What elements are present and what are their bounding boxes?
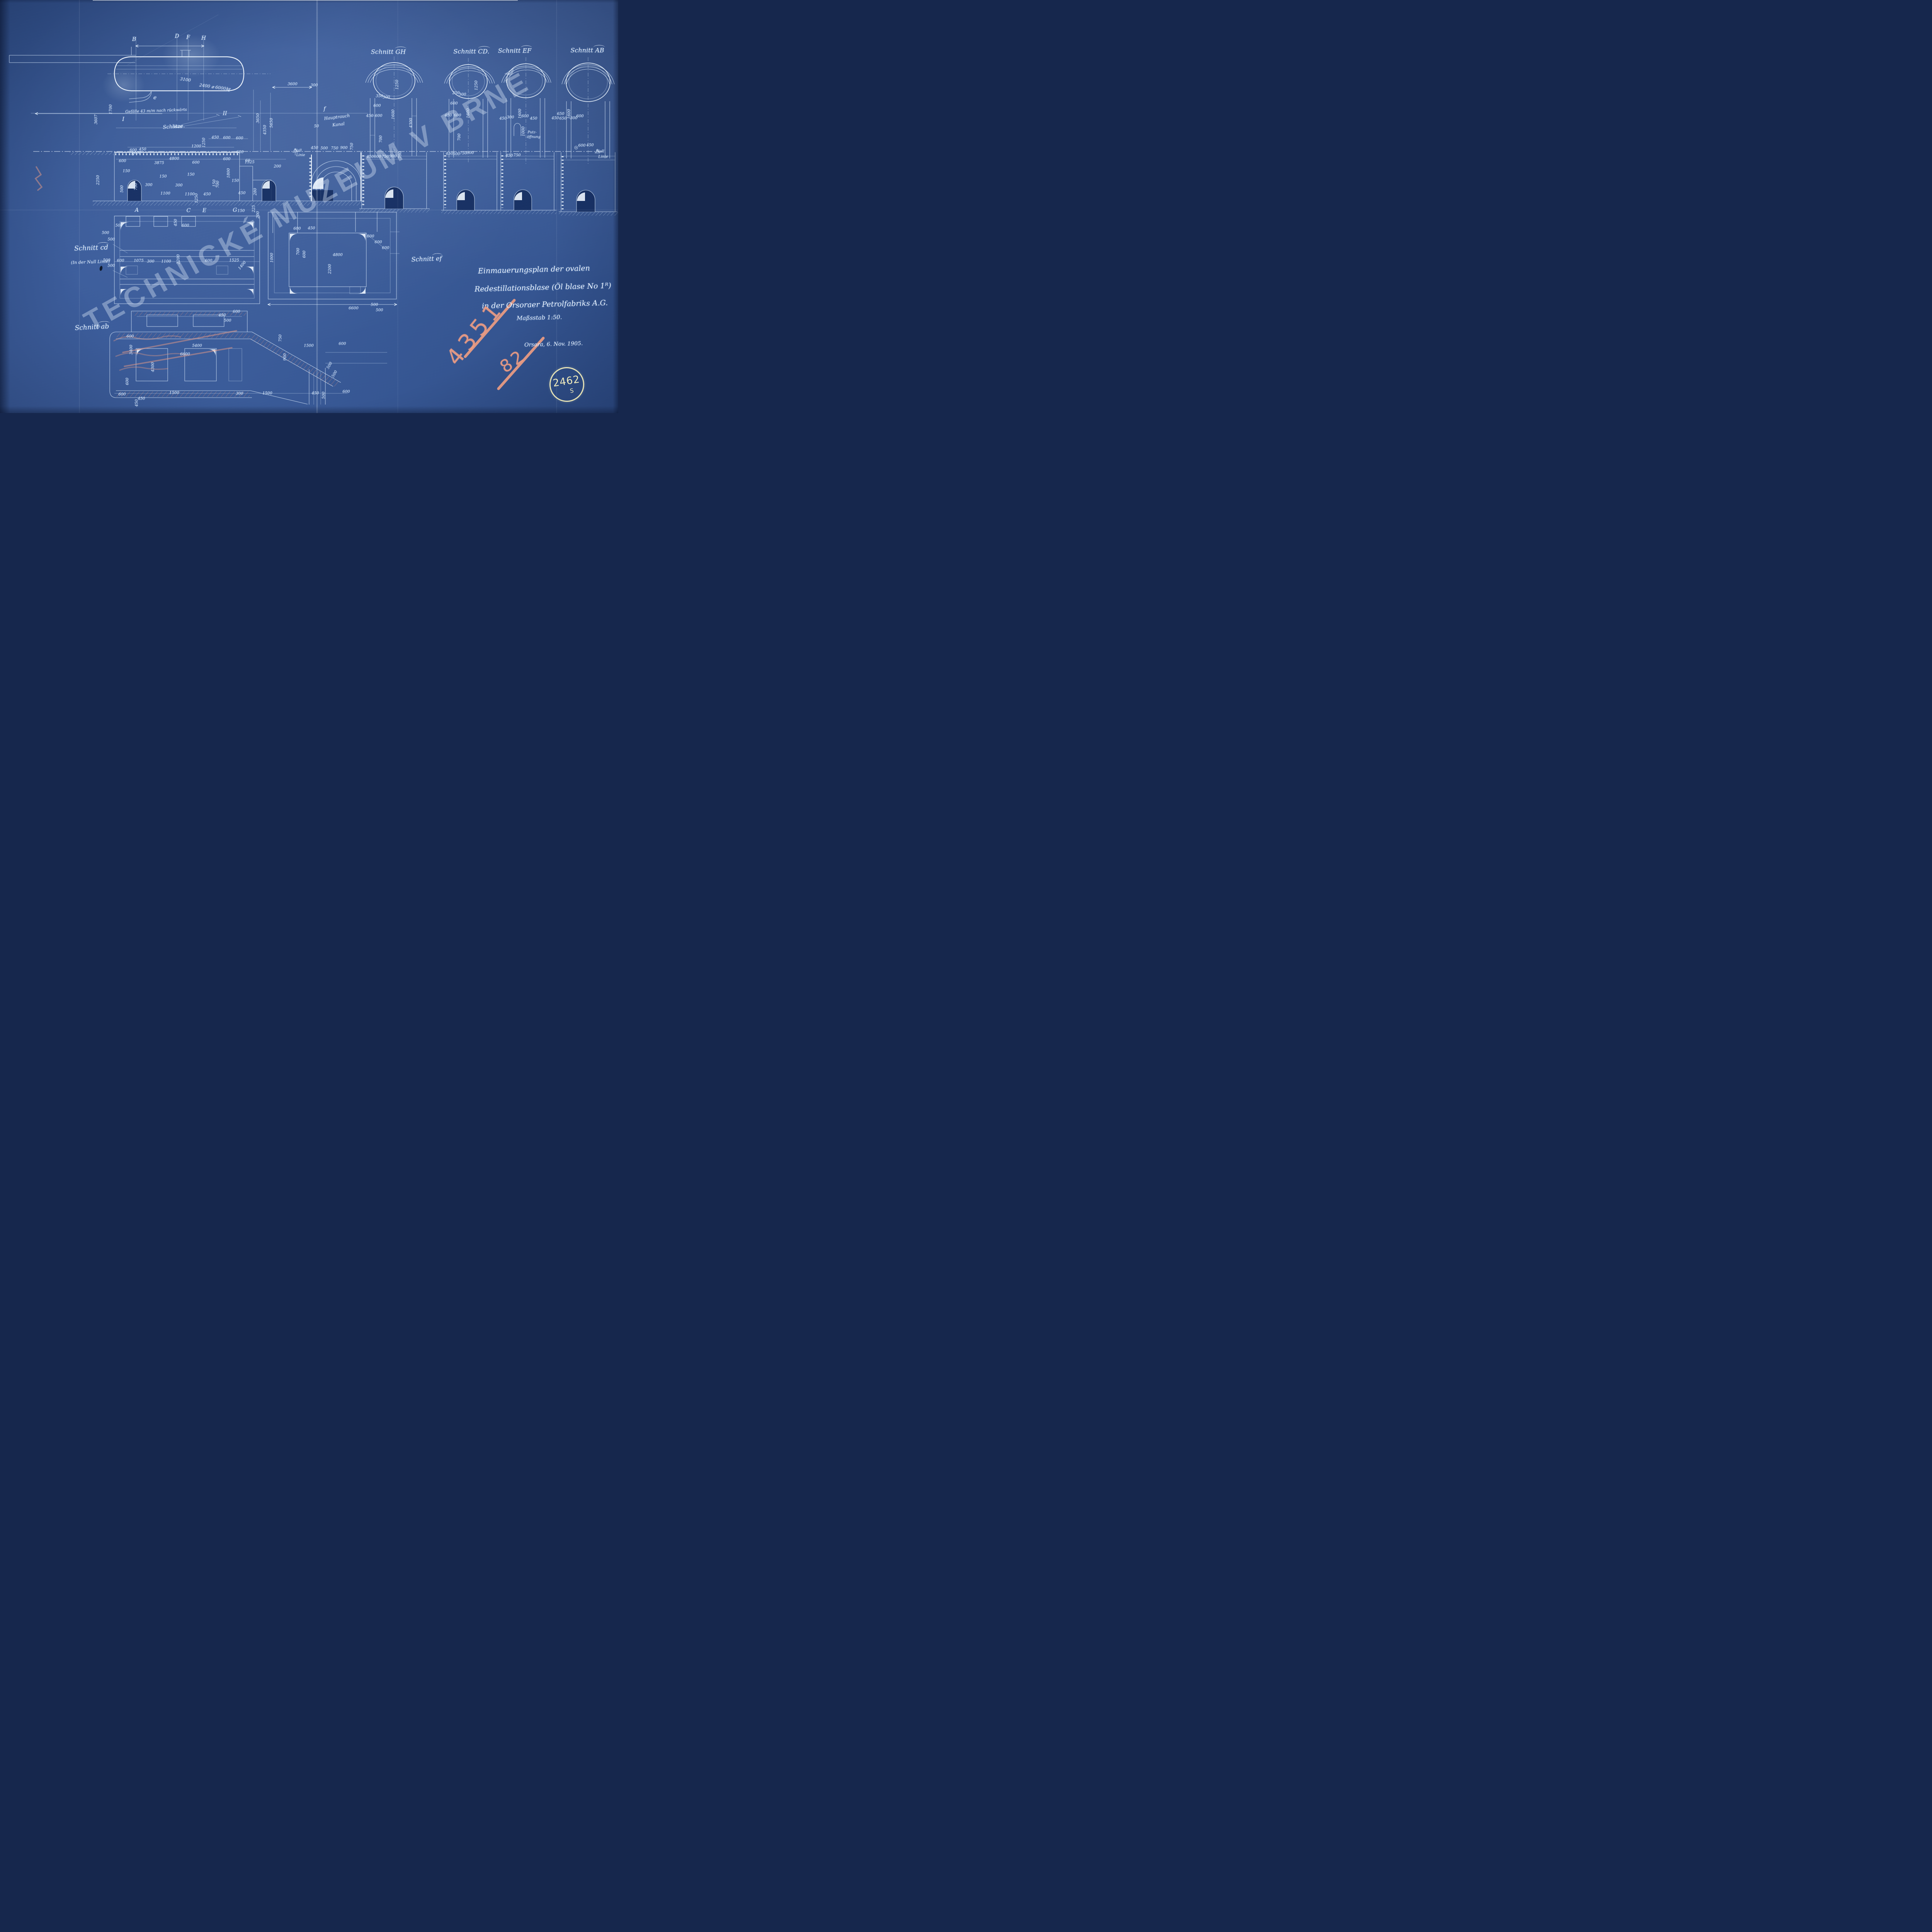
dimension-label: 2200 bbox=[177, 254, 181, 264]
dimension-label: 4800 bbox=[333, 253, 342, 257]
section-gh-drawing bbox=[359, 56, 430, 213]
dimension-label: 900 bbox=[340, 146, 347, 150]
dimension-label: 500 bbox=[120, 185, 124, 192]
dimension-label: 600 bbox=[182, 224, 189, 228]
dimension-label: 450 bbox=[139, 148, 146, 152]
dimension-label: 1075 bbox=[134, 259, 143, 263]
dimension-label: 600 bbox=[223, 157, 230, 162]
dimension-label: 6600 bbox=[180, 352, 190, 357]
dimension-label: 300 bbox=[507, 116, 514, 120]
plan-ef-drawing bbox=[268, 212, 400, 304]
dimension-label: 1100 bbox=[185, 192, 194, 197]
dimension-label: 500 bbox=[224, 319, 231, 323]
dimension-label: 750 bbox=[381, 155, 389, 159]
dimension-label: 300 bbox=[175, 184, 182, 188]
dimension-label: 1000 bbox=[270, 253, 274, 262]
dimension-label: 600 bbox=[374, 155, 381, 159]
fold-crease-horizontal bbox=[0, 209, 618, 211]
dimension-label: 200 bbox=[274, 165, 281, 169]
dimension-label: 1250 bbox=[202, 138, 206, 147]
dimension-label: 150 bbox=[159, 175, 167, 179]
dimension-label: 3650 bbox=[256, 113, 260, 123]
dimension-label: 700 bbox=[379, 135, 383, 143]
dimension-label: 900 bbox=[283, 353, 287, 361]
dimension-label: 500 bbox=[376, 308, 383, 313]
dimension-label: 600 bbox=[367, 235, 374, 239]
dimension-label: 600 bbox=[578, 144, 585, 148]
dimension-label: 600 bbox=[382, 246, 389, 250]
dimension-label: 1800 bbox=[227, 168, 231, 178]
scan-edge-highlight bbox=[93, 0, 518, 1]
dimension-label: 600 bbox=[126, 335, 134, 339]
section-label: Schnitt GH bbox=[371, 48, 406, 56]
dimension-label: 1100 bbox=[160, 192, 170, 196]
dimension-label: 450 bbox=[366, 155, 374, 159]
dimension-label: 1200 bbox=[191, 145, 201, 149]
dimension-label: 500 bbox=[107, 264, 115, 268]
sheet-edge-right bbox=[613, 0, 618, 413]
cut-letter: B bbox=[132, 36, 136, 43]
cut-letter: F bbox=[186, 34, 190, 41]
dimension-label: 2200 bbox=[328, 264, 332, 274]
dimension-label: 1525 bbox=[245, 160, 254, 165]
dimension-label: 600 bbox=[192, 161, 199, 165]
dimension-label: 750 bbox=[134, 183, 138, 190]
dimension-label: 1500 bbox=[304, 344, 313, 348]
dimension-label: 300 bbox=[145, 183, 152, 187]
dimension-label: 450 bbox=[308, 226, 315, 231]
dimension-label: 600 bbox=[126, 378, 130, 385]
dimension-label: 150 bbox=[187, 173, 194, 177]
section-label: Schnitt AB bbox=[571, 47, 604, 54]
dimension-label: 1100 bbox=[161, 260, 171, 264]
dimension-label: 600 bbox=[454, 114, 461, 118]
cut-letter: e bbox=[153, 95, 156, 101]
section-label: Putz- bbox=[527, 131, 536, 134]
dimension-label: 450 bbox=[238, 191, 245, 196]
section-cd-drawing bbox=[441, 58, 499, 214]
cut-letter: E bbox=[202, 207, 206, 214]
section-label: Null bbox=[294, 149, 301, 153]
cut-letter: H bbox=[201, 35, 206, 41]
cut-letter: I bbox=[122, 116, 124, 122]
section-label: Null bbox=[596, 150, 604, 154]
dimension-label: 2250 bbox=[96, 175, 100, 185]
dimension-label: 3400 bbox=[129, 345, 134, 354]
dimension-label: 450 bbox=[505, 154, 513, 158]
dimension-label: 200 bbox=[256, 211, 260, 218]
dimension-label: 600 bbox=[233, 310, 240, 314]
dimension-label: 700 bbox=[216, 180, 220, 188]
dimension-label: 600 bbox=[236, 136, 243, 141]
dimension-label: 1500 bbox=[262, 391, 272, 396]
blueprint-sheet: TECHNICKÉ MUZEUM V BRNĚ 6600450600600120… bbox=[0, 0, 618, 413]
dimension-label: 750 bbox=[459, 151, 467, 156]
dimension-label: 900 bbox=[389, 155, 396, 159]
cut-letter: f bbox=[323, 106, 325, 112]
dimension-label: 6600 bbox=[349, 306, 358, 311]
dimension-label: 600 bbox=[236, 150, 243, 155]
dimension-label: 700 bbox=[296, 248, 301, 255]
dimension-label: 4300 bbox=[409, 118, 413, 128]
dimension-label: 600 bbox=[118, 393, 126, 397]
dimension-label: 600 bbox=[303, 250, 307, 258]
cut-letter: c bbox=[131, 151, 134, 157]
section-label: Linie bbox=[296, 153, 305, 157]
dimension-label: 280 bbox=[253, 188, 258, 195]
technical-drawing bbox=[0, 0, 618, 413]
section-label: Linie bbox=[598, 155, 608, 159]
dimension-label: 4800 bbox=[169, 157, 179, 161]
dimension-label: 900 bbox=[466, 151, 474, 155]
dimension-label: 1250 bbox=[195, 193, 199, 203]
dimension-label: 450 bbox=[366, 114, 373, 118]
cut-letter: II bbox=[223, 111, 227, 117]
section-label: Schnitt ef bbox=[411, 255, 442, 263]
dimension-label: 3607 bbox=[94, 114, 99, 124]
dimension-label: 750 bbox=[513, 153, 520, 158]
dimension-label: 450 bbox=[218, 313, 226, 318]
dimension-label: 500 bbox=[322, 391, 326, 399]
dimension-label: 600 bbox=[117, 259, 124, 263]
dimension-label: 750 bbox=[331, 146, 338, 151]
dimension-label: 300 bbox=[147, 260, 154, 264]
dimension-label: 600 bbox=[375, 114, 382, 118]
dimension-label: 450 bbox=[174, 219, 178, 226]
cut-letter: D bbox=[175, 33, 179, 39]
dimension-label: 225 bbox=[252, 205, 256, 212]
dimension-label: 1250 bbox=[474, 80, 479, 90]
dimension-label: 450 bbox=[586, 143, 594, 148]
section-label: Schnitt CD. bbox=[453, 48, 489, 55]
cut-letter: C bbox=[187, 207, 191, 214]
dimension-label: 600 bbox=[223, 136, 230, 140]
section-ab-drawing bbox=[559, 57, 618, 216]
dimension-label: 600 bbox=[293, 227, 301, 231]
dimension-label: 300 bbox=[383, 95, 390, 100]
dimension-label: 600 bbox=[342, 390, 350, 394]
dimension-label: 600 bbox=[338, 342, 346, 346]
dimension-label: 500 bbox=[452, 152, 460, 156]
section-label: öffnung bbox=[527, 135, 541, 139]
dimension-label: 1000 bbox=[522, 126, 526, 136]
dimension-label: 500 bbox=[320, 146, 328, 151]
section-label: Schnitt EF bbox=[498, 47, 531, 54]
dimension-label: 1700 bbox=[109, 104, 113, 114]
dimension-label: 500 bbox=[102, 231, 109, 235]
dimension-label: 600 bbox=[576, 114, 583, 119]
dimension-label: 650 bbox=[557, 112, 564, 116]
dimension-label: 450 bbox=[211, 136, 219, 140]
stamp-letter: S bbox=[570, 387, 574, 395]
dimension-label: 600 bbox=[205, 259, 212, 263]
dimension-label: 3600 bbox=[287, 82, 297, 87]
dimension-label: 1600 bbox=[391, 109, 396, 119]
fold-crease bbox=[316, 0, 318, 413]
dimension-label: 600 bbox=[373, 104, 381, 108]
dimension-label: 500 bbox=[107, 238, 115, 242]
dimension-label: 4350 bbox=[263, 125, 267, 134]
dimension-label: 150 bbox=[122, 169, 130, 173]
dimension-label: 650 bbox=[559, 117, 566, 121]
dimension-label: 450 bbox=[499, 117, 507, 121]
dimension-label: 5400 bbox=[192, 344, 202, 348]
dimension-label: 4300 bbox=[151, 362, 155, 372]
dimension-label: 600 bbox=[119, 159, 126, 163]
dimension-label: 1500 bbox=[169, 391, 179, 395]
dimension-label: 3875 bbox=[154, 161, 164, 165]
fold-crease bbox=[556, 0, 557, 413]
dimension-label: 350 bbox=[376, 94, 383, 99]
dimension-label: 150 bbox=[231, 179, 239, 183]
dimension-label: 450 bbox=[446, 152, 453, 156]
dimension-label: 750 bbox=[350, 143, 354, 150]
dimension-label: 300 bbox=[236, 392, 243, 396]
dimension-label: 600 bbox=[521, 114, 529, 119]
dimension-label: 300 bbox=[459, 93, 466, 97]
dimension-label: 450 bbox=[551, 116, 559, 121]
dimension-label: 450 bbox=[135, 399, 139, 406]
sheet-edge-bottom bbox=[0, 406, 618, 413]
dimension-label: 5650 bbox=[270, 118, 274, 128]
scale-note: Maßsstab 1:50. bbox=[517, 314, 562, 321]
fold-crease bbox=[79, 0, 80, 413]
dimension-label: 1600 bbox=[466, 108, 471, 118]
dimension-label: 600 bbox=[374, 240, 382, 245]
fold-crease bbox=[397, 0, 398, 413]
dimension-label: 450 bbox=[203, 192, 211, 197]
dimension-label: 500 bbox=[371, 303, 378, 307]
dimension-label: 1525 bbox=[229, 259, 239, 263]
dimension-label: 450 bbox=[444, 114, 452, 118]
dimension-label: 750 bbox=[398, 151, 403, 158]
dimension-label: 600 bbox=[450, 102, 457, 106]
dimension-label: 700 bbox=[457, 133, 462, 141]
dimension-label: 450 bbox=[530, 117, 537, 121]
dimension-label: 500 bbox=[115, 224, 122, 228]
dimension-label: 750 bbox=[279, 334, 283, 342]
sheet-edge-left bbox=[0, 0, 10, 413]
